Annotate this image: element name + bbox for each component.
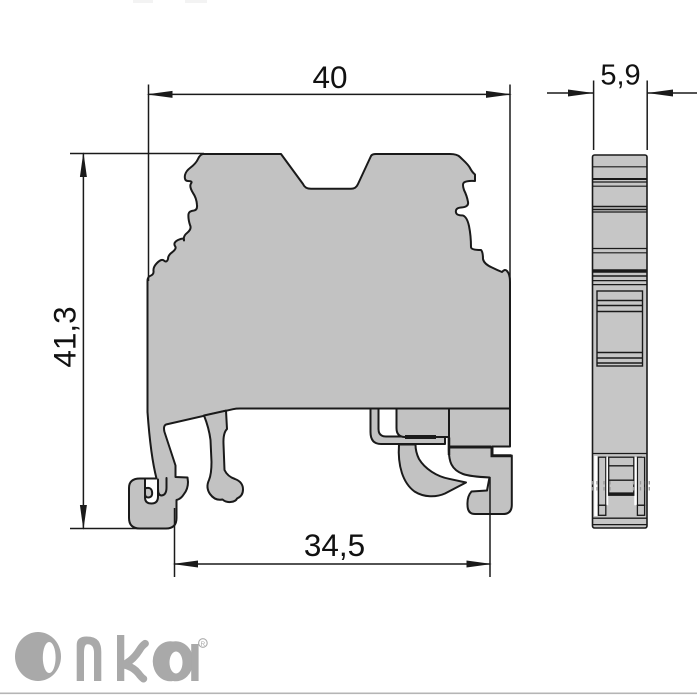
svg-text:R: R bbox=[201, 641, 206, 648]
svg-text:5,9: 5,9 bbox=[600, 60, 640, 92]
svg-text:40: 40 bbox=[312, 59, 347, 95]
svg-text:34,5: 34,5 bbox=[304, 527, 365, 563]
svg-text:41,3: 41,3 bbox=[47, 306, 83, 367]
